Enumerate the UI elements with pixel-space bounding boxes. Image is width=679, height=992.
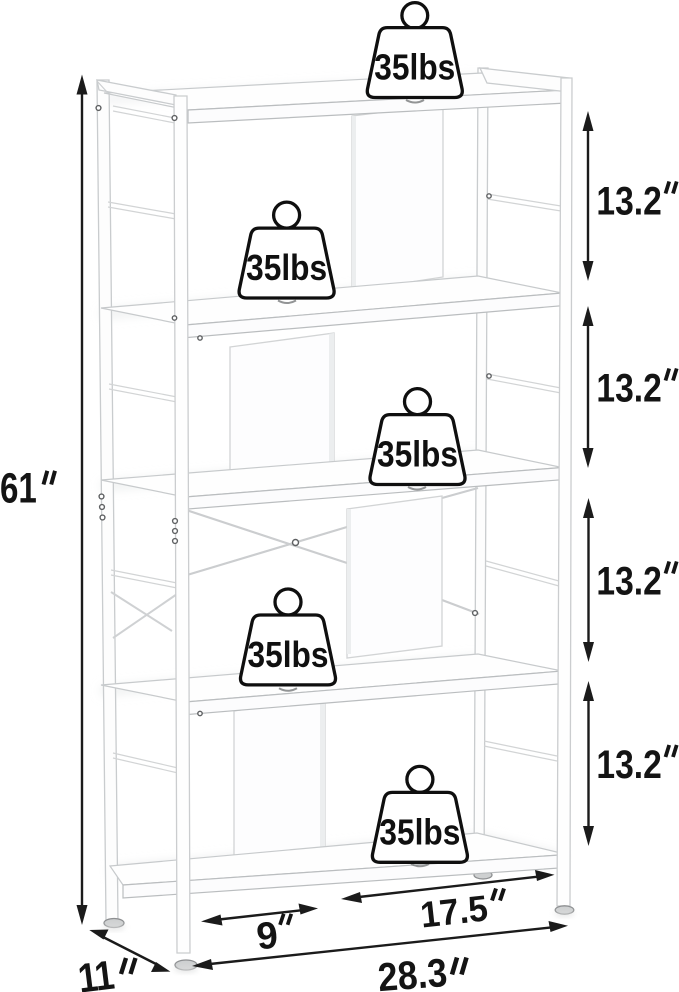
svg-text:13.2: 13.2 [596, 559, 661, 603]
svg-text:9: 9 [255, 914, 280, 958]
svg-text:28.3: 28.3 [376, 951, 449, 992]
svg-text:13.2: 13.2 [596, 179, 661, 223]
svg-text:17.5: 17.5 [418, 888, 490, 936]
svg-text:11: 11 [76, 953, 117, 992]
svg-text:61: 61 [0, 466, 37, 513]
svg-text:35lbs: 35lbs [377, 435, 458, 475]
svg-text:35lbs: 35lbs [246, 248, 327, 288]
svg-text:35lbs: 35lbs [248, 635, 329, 675]
svg-text:35lbs: 35lbs [374, 48, 455, 88]
svg-text:13.2: 13.2 [596, 366, 661, 410]
svg-text:13.2: 13.2 [596, 742, 661, 786]
svg-text:35lbs: 35lbs [379, 812, 460, 852]
